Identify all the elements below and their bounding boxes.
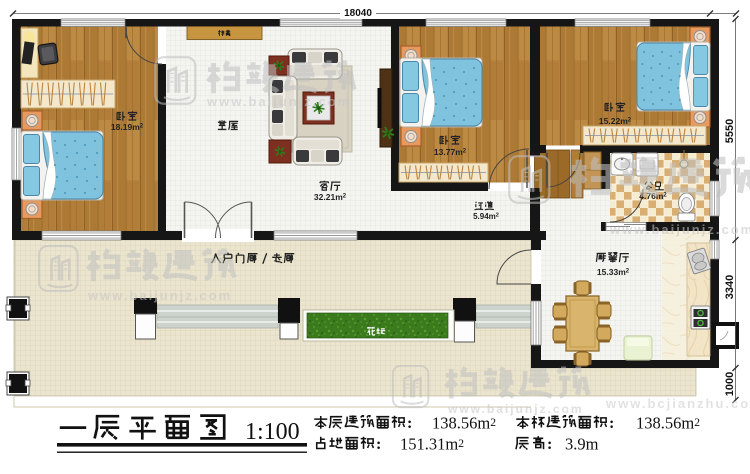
svg-text:15.22m2: 15.22m2: [599, 116, 632, 126]
svg-text:18.19m2: 18.19m2: [111, 122, 144, 132]
svg-text:1000: 1000: [724, 372, 736, 396]
svg-text:5.94m2: 5.94m2: [473, 212, 499, 221]
svg-text:www.baijunjz.com: www.baijunjz.com: [609, 222, 750, 237]
svg-text:151.31m2: 151.31m2: [400, 435, 464, 454]
svg-text:15.33m2: 15.33m2: [597, 267, 630, 277]
svg-text:www.baijunjz.com: www.baijunjz.com: [87, 288, 232, 303]
svg-text:18040: 18040: [344, 8, 372, 19]
svg-text::: :: [376, 436, 381, 453]
svg-text:www.baijunjz.com: www.baijunjz.com: [206, 94, 351, 109]
svg-text::: :: [547, 436, 552, 453]
svg-text:138.56m2: 138.56m2: [432, 414, 496, 433]
svg-text::: :: [609, 415, 614, 432]
svg-text:3340: 3340: [724, 275, 736, 299]
svg-text:1:100: 1:100: [245, 419, 300, 445]
svg-text:32.21m2: 32.21m2: [314, 192, 347, 202]
svg-text:13.77m2: 13.77m2: [434, 147, 467, 157]
svg-text:www.bcjianzhu.com: www.bcjianzhu.com: [605, 396, 750, 411]
svg-text::: :: [407, 415, 412, 432]
svg-text:138.56m2: 138.56m2: [636, 414, 700, 433]
svg-text:5550: 5550: [724, 119, 736, 143]
svg-text:3.9m: 3.9m: [565, 435, 599, 454]
